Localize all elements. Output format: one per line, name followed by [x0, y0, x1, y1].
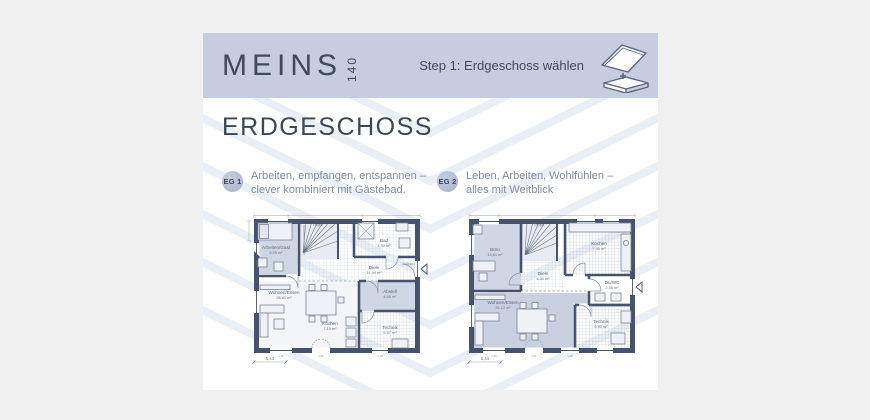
step-label: Step 1: Erdgeschoss wählen [419, 58, 584, 73]
description-line: Arbeiten, empfangen, entspannen – [251, 169, 431, 183]
svg-text:4,30 m²: 4,30 m² [536, 276, 550, 281]
option-badge-eg1[interactable]: EG 1 [222, 171, 243, 192]
brand-logo: MEINS 140 [222, 50, 359, 82]
description-line: Leben, Arbeiten, Wohlfühlen – [466, 169, 646, 183]
svg-text:1,26: 1,26 [491, 354, 497, 358]
floorplan-eg2[interactable]: Büro 14,61 m² Treppe Kochen 7,44 m² Diel… [461, 213, 643, 367]
svg-text:1,26: 1,26 [377, 354, 383, 358]
brand-name: MEINS [222, 51, 342, 81]
svg-text:28,61 m²: 28,61 m² [276, 295, 292, 300]
svg-text:5,57 m²: 5,57 m² [383, 330, 397, 335]
svg-text:1,26: 1,26 [567, 354, 573, 358]
description-line: clever kombiniert mit Gästebad. [251, 183, 431, 197]
svg-text:6,90 m²: 6,90 m² [594, 324, 608, 329]
dimension-label: 5,43 [266, 356, 275, 361]
option-description-eg1: Arbeiten, empfangen, entspannen – clever… [251, 169, 431, 197]
header-band: MEINS 140 Step 1: Erdgeschoss wählen [203, 33, 658, 98]
option-badge-eg2[interactable]: EG 2 [437, 171, 458, 192]
option-description-eg2: Leben, Arbeiten, Wohlfühlen – alles mit … [466, 169, 646, 197]
floor-selector-card: MEINS 140 Step 1: Erdgeschoss wählen ERD… [203, 33, 658, 390]
brand-number: 140 [345, 50, 359, 82]
dimension-label: 5,44 [481, 356, 490, 361]
description-line: alles mit Weitblick [466, 183, 646, 197]
floorplan-eg1[interactable]: Arbeiten/Gast 9,59 m² Treppe Bad 4,92 m²… [246, 213, 428, 367]
svg-text:7,19 m²: 7,19 m² [323, 326, 337, 331]
svg-text:1,26: 1,26 [278, 354, 284, 358]
svg-text:4,92 m²: 4,92 m² [377, 243, 391, 248]
svg-text:34,12 m²: 34,12 m² [495, 305, 511, 310]
window-dimension-labels: 1,26 2,01 1,26 [278, 354, 383, 358]
svg-text:11,44 m²: 11,44 m² [366, 270, 382, 275]
svg-text:4,05 m²: 4,05 m² [383, 294, 397, 299]
svg-text:14,61 m²: 14,61 m² [487, 252, 503, 257]
entrance-marker-icon [636, 282, 642, 292]
svg-text:7,44 m²: 7,44 m² [592, 246, 606, 251]
svg-text:Treppe: Treppe [534, 223, 545, 227]
svg-text:2,01: 2,01 [531, 354, 537, 358]
window-dimension-labels: 1,26 2,01 1,26 [491, 354, 573, 358]
entrance-marker-icon [421, 264, 427, 274]
svg-text:2,56 m²: 2,56 m² [605, 285, 619, 290]
svg-text:Treppe: Treppe [313, 223, 324, 227]
svg-text:9,59 m²: 9,59 m² [269, 250, 283, 255]
house-floor-select-icon [596, 39, 652, 93]
svg-text:2,01: 2,01 [318, 354, 324, 358]
page-title: ERDGESCHOSS [222, 113, 433, 142]
